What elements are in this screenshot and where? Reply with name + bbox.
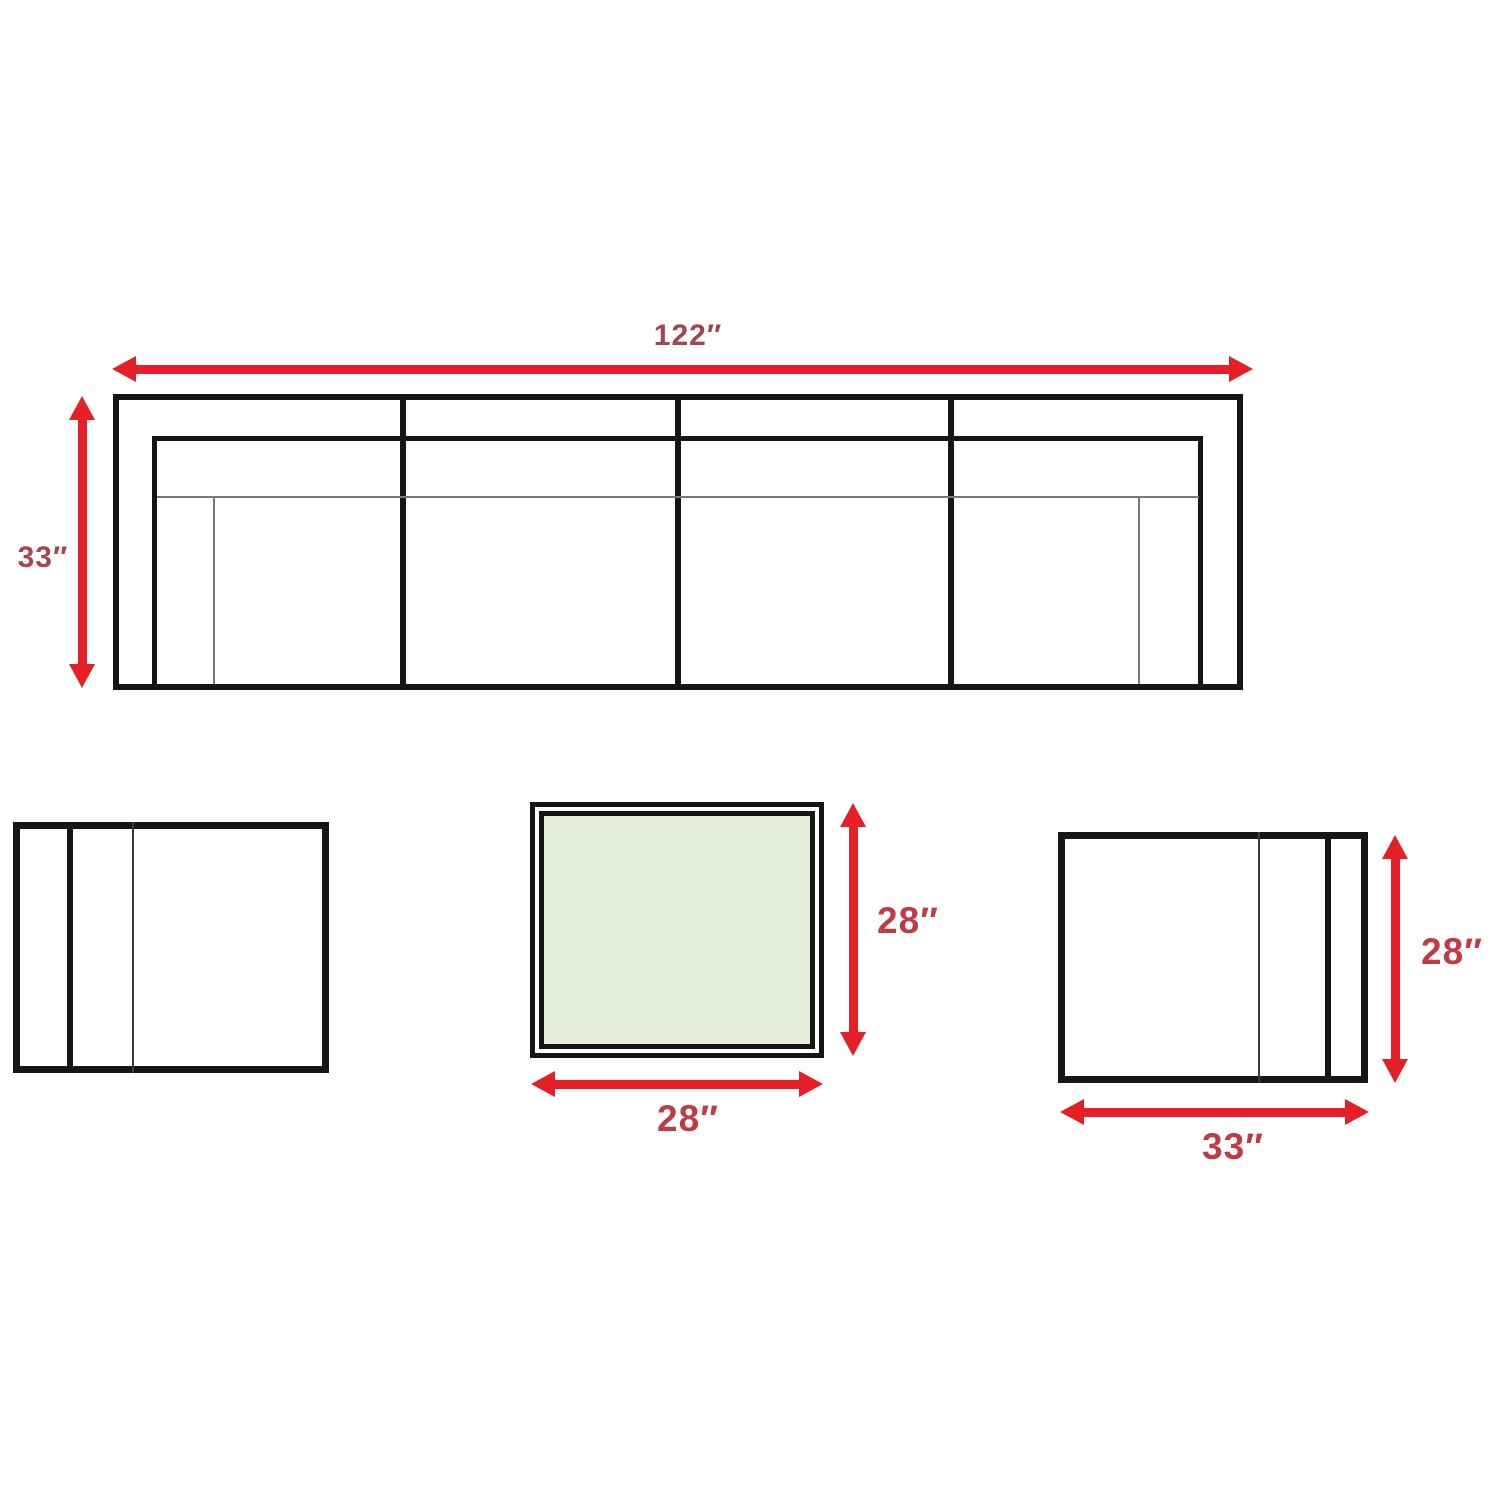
right-chair-arm-divider [1325,832,1331,1083]
left-chair-seat-line [132,822,134,1073]
left-chair-outline [13,822,329,1073]
coffee-table-glass-top [539,811,815,1049]
right-chair-top-view [1058,832,1368,1083]
arrow-shaft [78,412,87,672]
coffee-table-depth-label: 28″ [877,900,939,942]
right-chair-depth-label: 28″ [1421,931,1483,973]
sofa-left-arm-line [213,496,215,684]
right-chair-seat-line [1258,832,1260,1083]
arrow-shaft [1076,1108,1353,1117]
sofa-backrest-outline [152,436,1203,690]
arrowhead-right-icon [1345,1099,1369,1125]
sofa-depth-label: 33″ [18,541,69,575]
left-chair-arm-divider [67,822,73,1073]
arrowhead-down-icon [1382,1059,1408,1083]
arrow-shaft [849,819,858,1040]
arrowhead-down-icon [840,1032,866,1056]
sofa-width-label: 122″ [654,319,722,353]
coffee-table-top-view [530,802,824,1058]
sofa-right-arm-line [1138,496,1140,684]
arrowhead-down-icon [69,664,95,688]
sofa-seat-front-line [157,496,1199,498]
sofa-top-view [113,394,1243,690]
furniture-dimensions-diagram: 122″ 33″ 28″ 28″ 28″ [0,0,1500,1500]
arrow-shaft [1391,851,1400,1067]
arrowhead-right-icon [1229,356,1253,382]
coffee-table-width-label: 28″ [657,1098,719,1140]
arrow-shaft [547,1080,807,1089]
left-chair-top-view [13,822,329,1073]
arrowhead-right-icon [799,1071,823,1097]
right-chair-width-label: 33″ [1202,1126,1264,1168]
right-chair-outline [1058,832,1368,1083]
arrow-shaft [128,365,1237,374]
